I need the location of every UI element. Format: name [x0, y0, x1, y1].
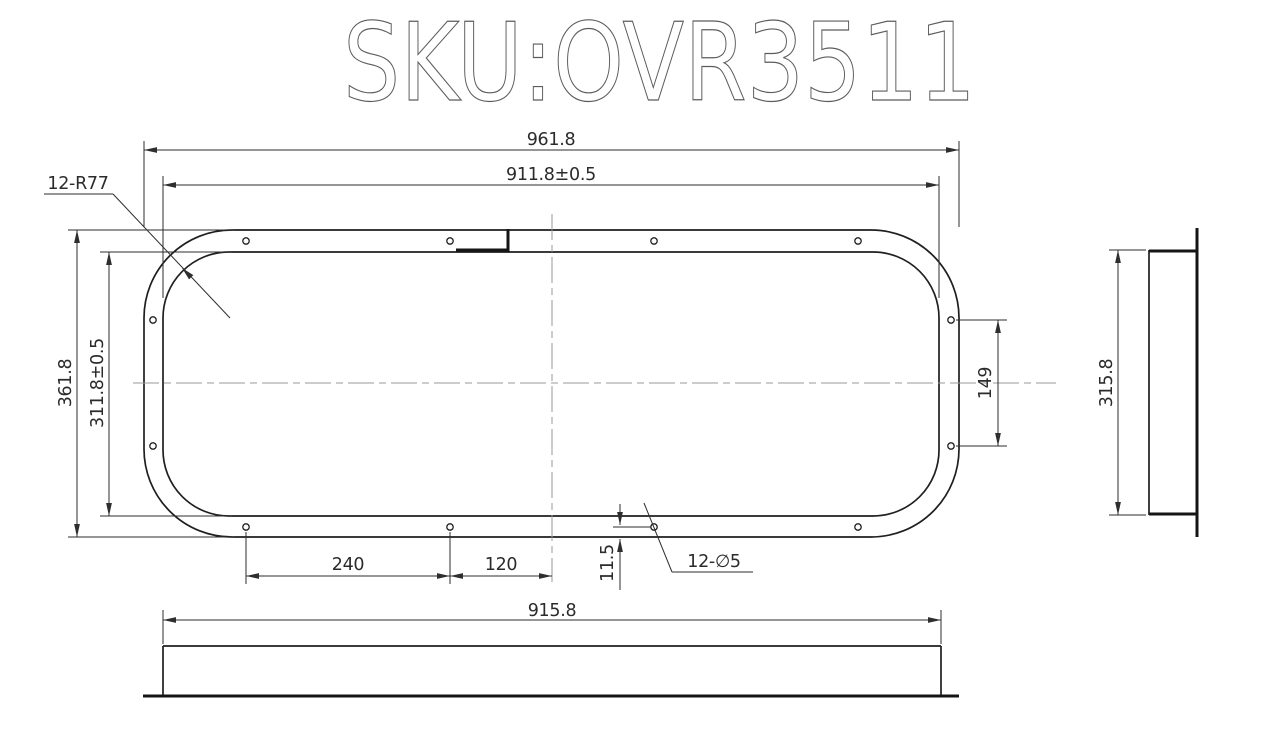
- label-text-holes: 12-∅5: [687, 552, 740, 572]
- side-view: 315.8: [1097, 228, 1197, 537]
- hole: [150, 317, 156, 323]
- dim-text-hole-to-center: 120: [485, 555, 518, 575]
- dim-text-hole-edge-offset: 11.5: [598, 544, 618, 582]
- dim-text-bottom-width: 915.8: [528, 601, 577, 621]
- dim-text-side-height: 315.8: [1097, 359, 1117, 408]
- title-block: SKU:OVR3511: [343, 1, 976, 126]
- drawing-canvas: SKU:OVR3511: [0, 0, 1280, 744]
- hole: [447, 238, 453, 244]
- dim-text-hole-pitch: 240: [332, 555, 365, 575]
- inner-frame-outline: [163, 252, 939, 516]
- hole: [948, 317, 954, 323]
- dim-text-inner-width: 911.8±0.5: [506, 165, 596, 185]
- hole: [855, 524, 861, 530]
- label-text-corner-radius: 12-R77: [47, 174, 108, 194]
- dim-text-outer-height: 361.8: [56, 359, 76, 408]
- front-view: [133, 214, 1056, 582]
- hole: [150, 443, 156, 449]
- dim-text-inner-height: 311.8±0.5: [88, 338, 108, 428]
- dim-text-side-hole-spacing: 149: [976, 367, 996, 400]
- bottom-view: 915.8: [143, 601, 959, 696]
- front-view-dimensions: 961.8 911.8±0.5 361.8 311.8±0.5 149 240 …: [44, 130, 1007, 590]
- hole: [243, 524, 249, 530]
- leader-line-corner-radius: [113, 194, 230, 318]
- hole: [855, 238, 861, 244]
- dim-text-outer-width: 961.8: [527, 130, 576, 150]
- hole: [948, 443, 954, 449]
- hole: [447, 524, 453, 530]
- hole: [651, 238, 657, 244]
- sku-title: SKU:OVR3511: [343, 1, 976, 126]
- hole: [243, 238, 249, 244]
